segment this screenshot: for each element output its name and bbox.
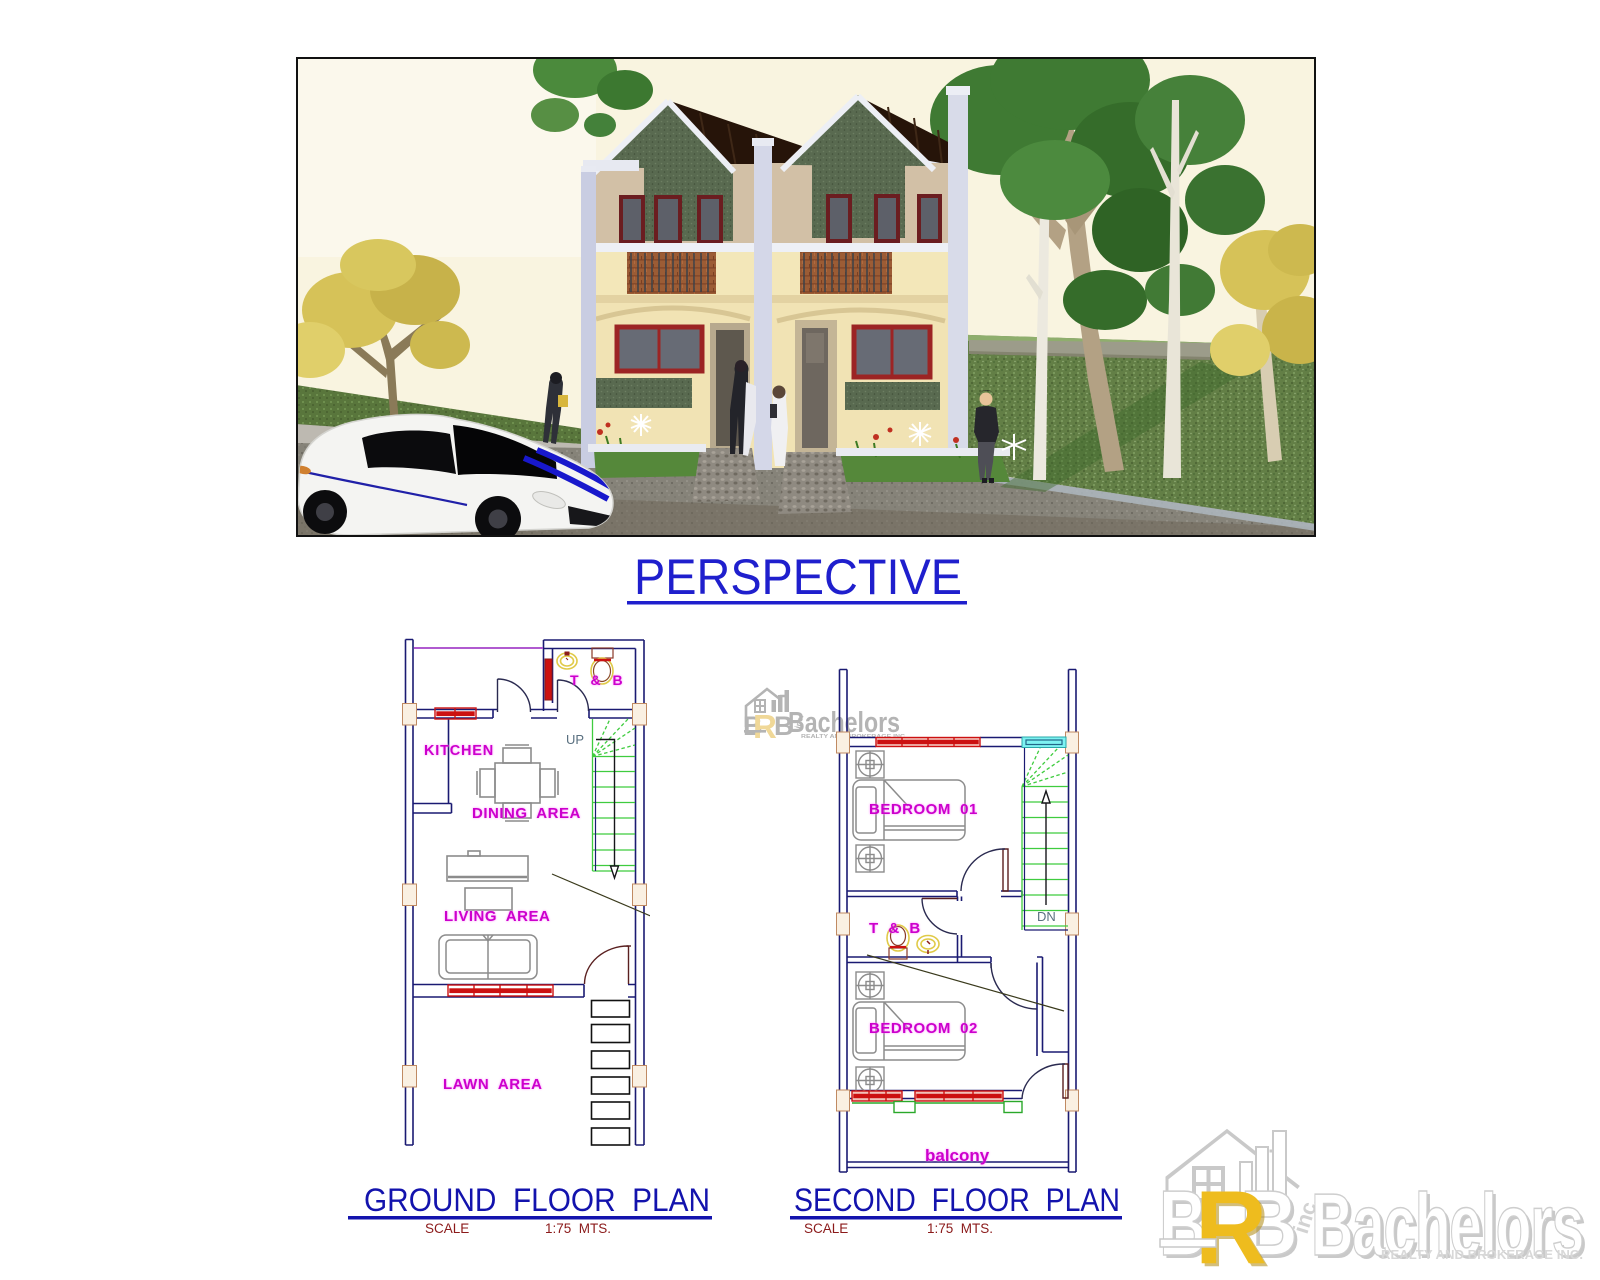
svg-text:BEDROOM 01: BEDROOM 01	[869, 801, 978, 818]
svg-text:GROUND FLOOR PLAN: GROUND FLOOR PLAN	[364, 1182, 710, 1218]
svg-text:REALTY AND BROKERAGE INC.: REALTY AND BROKERAGE INC.	[1381, 1247, 1583, 1262]
svg-text:SCALE: SCALE	[804, 1221, 848, 1236]
svg-text:T & B: T & B	[570, 672, 627, 688]
svg-text:LAWN AREA: LAWN AREA	[443, 1076, 542, 1093]
svg-text:1:75 MTS.: 1:75 MTS.	[545, 1221, 611, 1236]
svg-text:PERSPECTIVE: PERSPECTIVE	[634, 550, 962, 605]
svg-text:1:75 MTS.: 1:75 MTS.	[927, 1221, 993, 1236]
svg-text:T & B: T & B	[869, 920, 923, 937]
svg-text:KITCHEN: KITCHEN	[424, 743, 494, 759]
svg-text:balcony: balcony	[925, 1146, 990, 1165]
svg-text:DN: DN	[1037, 909, 1056, 924]
svg-text:SECOND FLOOR PLAN: SECOND FLOOR PLAN	[794, 1182, 1120, 1218]
svg-text:LIVING AREA: LIVING AREA	[444, 908, 550, 925]
svg-text:BEDROOM 02: BEDROOM 02	[869, 1020, 978, 1037]
svg-text:R: R	[1195, 1170, 1267, 1280]
svg-text:UP: UP	[566, 732, 584, 747]
svg-text:SCALE: SCALE	[425, 1221, 469, 1236]
svg-text:DINING AREA: DINING AREA	[472, 805, 581, 822]
